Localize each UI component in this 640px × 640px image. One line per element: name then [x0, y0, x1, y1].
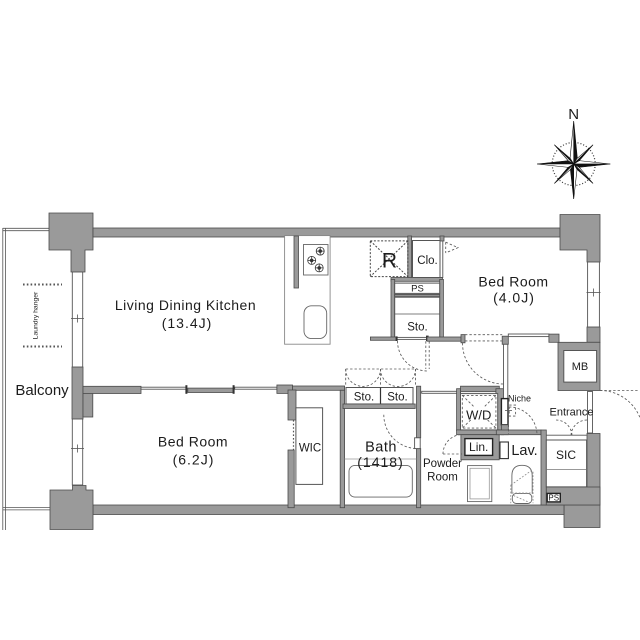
svg-text:R: R: [382, 250, 397, 273]
svg-text:WIC: WIC: [299, 443, 321, 455]
svg-text:Sto.: Sto.: [407, 322, 427, 334]
svg-text:W/D: W/D: [466, 408, 491, 423]
svg-text:Lav.: Lav.: [511, 443, 537, 459]
svg-text:SIC: SIC: [556, 448, 576, 462]
svg-text:(13.4J): (13.4J): [162, 315, 213, 331]
svg-text:(6.2J): (6.2J): [173, 452, 215, 468]
svg-text:Room: Room: [427, 472, 458, 484]
svg-text:Niche: Niche: [508, 394, 531, 404]
svg-text:Living Dining Kitchen: Living Dining Kitchen: [115, 297, 256, 313]
svg-text:(4.0J): (4.0J): [493, 290, 535, 306]
svg-text:N: N: [568, 106, 579, 123]
svg-text:Laundry hanger: Laundry hanger: [33, 291, 40, 339]
svg-text:PS: PS: [411, 284, 424, 295]
svg-text:Powder: Powder: [423, 458, 462, 470]
svg-text:Bed Room: Bed Room: [478, 274, 548, 290]
svg-text:Balcony: Balcony: [15, 382, 69, 399]
svg-text:Clo.: Clo.: [417, 255, 437, 267]
svg-text:Bed Room: Bed Room: [158, 434, 228, 450]
svg-text:Entrance: Entrance: [549, 407, 593, 419]
svg-text:(1418): (1418): [357, 454, 403, 470]
svg-text:PS: PS: [548, 494, 559, 503]
svg-text:MB: MB: [572, 361, 589, 373]
svg-text:Lin.: Lin.: [469, 440, 488, 454]
svg-text:Sto.: Sto.: [387, 392, 407, 404]
svg-text:Sto.: Sto.: [354, 392, 374, 404]
